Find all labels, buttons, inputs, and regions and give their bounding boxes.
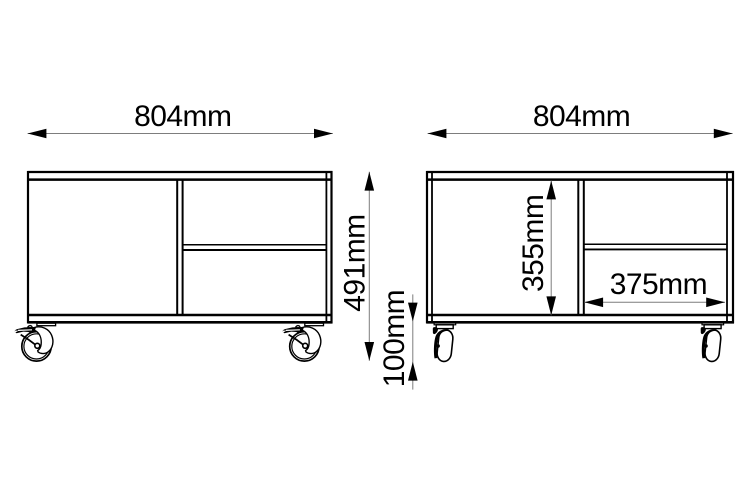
svg-text:804mm: 804mm: [533, 100, 630, 133]
svg-text:355mm: 355mm: [517, 195, 550, 292]
svg-text:491mm: 491mm: [338, 214, 371, 311]
svg-text:804mm: 804mm: [134, 100, 231, 133]
svg-text:375mm: 375mm: [610, 268, 707, 301]
svg-text:100mm: 100mm: [378, 290, 411, 387]
